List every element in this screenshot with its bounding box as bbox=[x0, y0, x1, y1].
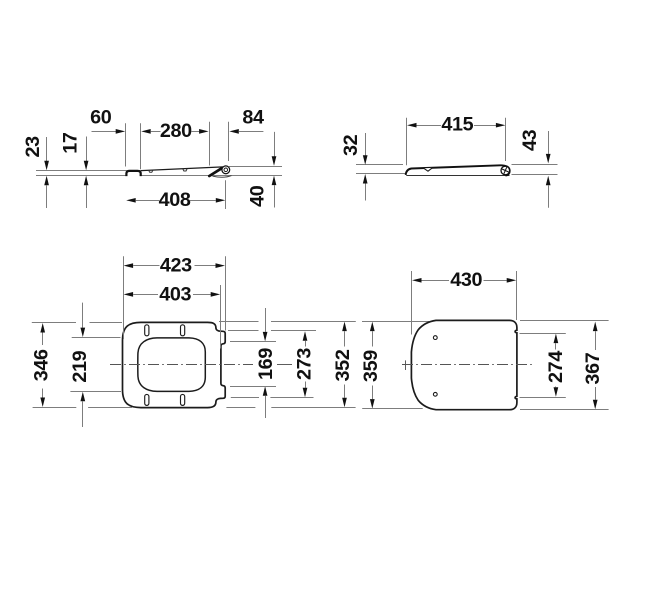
svg-text:273: 273 bbox=[293, 348, 315, 380]
svg-text:280: 280 bbox=[160, 120, 192, 142]
svg-text:430: 430 bbox=[450, 269, 482, 291]
svg-text:32: 32 bbox=[340, 134, 362, 156]
svg-text:274: 274 bbox=[545, 351, 567, 383]
svg-text:408: 408 bbox=[159, 189, 191, 211]
svg-text:359: 359 bbox=[360, 350, 382, 382]
svg-text:219: 219 bbox=[69, 350, 91, 382]
svg-text:23: 23 bbox=[22, 136, 44, 158]
svg-text:415: 415 bbox=[441, 114, 473, 136]
svg-text:423: 423 bbox=[160, 254, 192, 276]
svg-text:43: 43 bbox=[519, 129, 541, 151]
svg-text:169: 169 bbox=[255, 348, 277, 380]
svg-text:403: 403 bbox=[159, 284, 191, 306]
svg-text:40: 40 bbox=[246, 185, 268, 207]
svg-text:367: 367 bbox=[582, 352, 604, 384]
svg-text:352: 352 bbox=[332, 349, 354, 381]
svg-text:346: 346 bbox=[30, 349, 52, 381]
svg-text:84: 84 bbox=[242, 107, 264, 129]
svg-text:60: 60 bbox=[90, 107, 112, 129]
svg-text:17: 17 bbox=[60, 132, 82, 154]
